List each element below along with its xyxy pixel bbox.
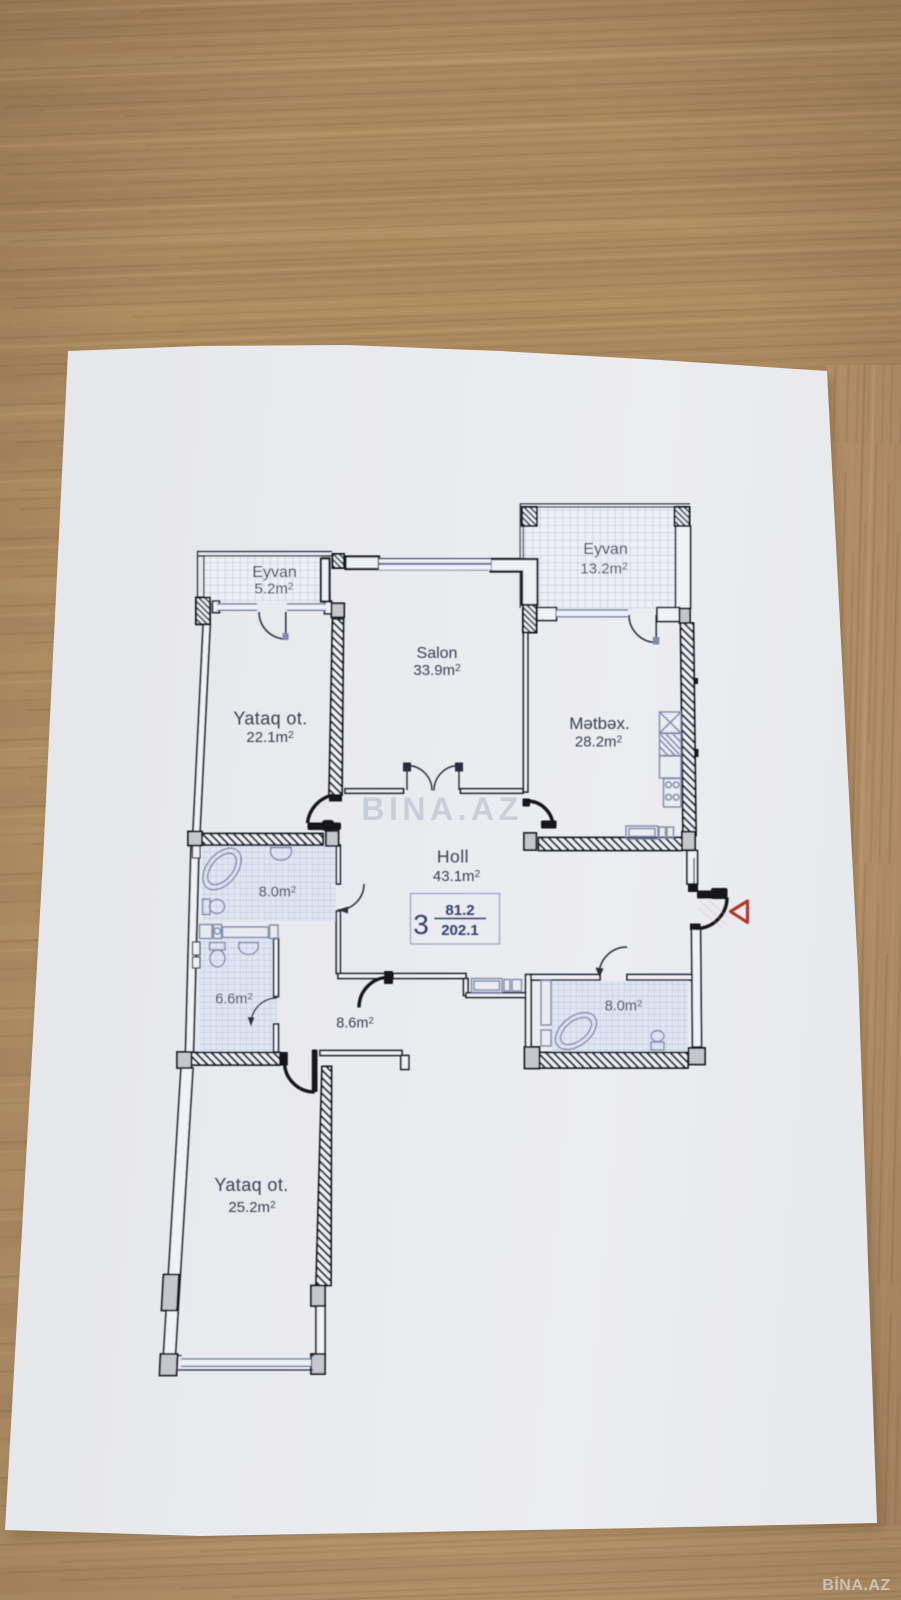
svg-text:25.2m2: 25.2m2 [228,1199,276,1216]
svg-text:13.2m2: 13.2m2 [580,561,628,578]
svg-text:3: 3 [413,909,429,940]
svg-text:Eyvan: Eyvan [252,564,296,581]
svg-text:8.0m2: 8.0m2 [259,885,297,901]
svg-text:8.0m2: 8.0m2 [605,999,643,1015]
svg-text:81.2: 81.2 [445,902,474,919]
svg-text:Yataq ot.: Yataq ot. [233,709,307,729]
svg-text:BINA.AZ: BINA.AZ [361,791,522,827]
svg-text:202.1: 202.1 [441,922,479,939]
svg-text:28.2m2: 28.2m2 [575,734,623,751]
svg-text:6.6m2: 6.6m2 [215,992,253,1008]
svg-text:BİNA.AZ: BİNA.AZ [822,1576,890,1594]
svg-text:Eyvan: Eyvan [583,541,627,558]
svg-text:Salon: Salon [417,645,458,662]
svg-text:8.6m2: 8.6m2 [336,1016,374,1032]
svg-text:Holl: Holl [437,847,469,867]
svg-text:Mətbəx.: Mətbəx. [569,714,629,733]
svg-text:33.9m2: 33.9m2 [413,662,461,679]
svg-text:43.1m2: 43.1m2 [433,868,481,885]
svg-text:Yataq ot.: Yataq ot. [214,1175,288,1195]
svg-text:22.1m2: 22.1m2 [246,729,294,746]
